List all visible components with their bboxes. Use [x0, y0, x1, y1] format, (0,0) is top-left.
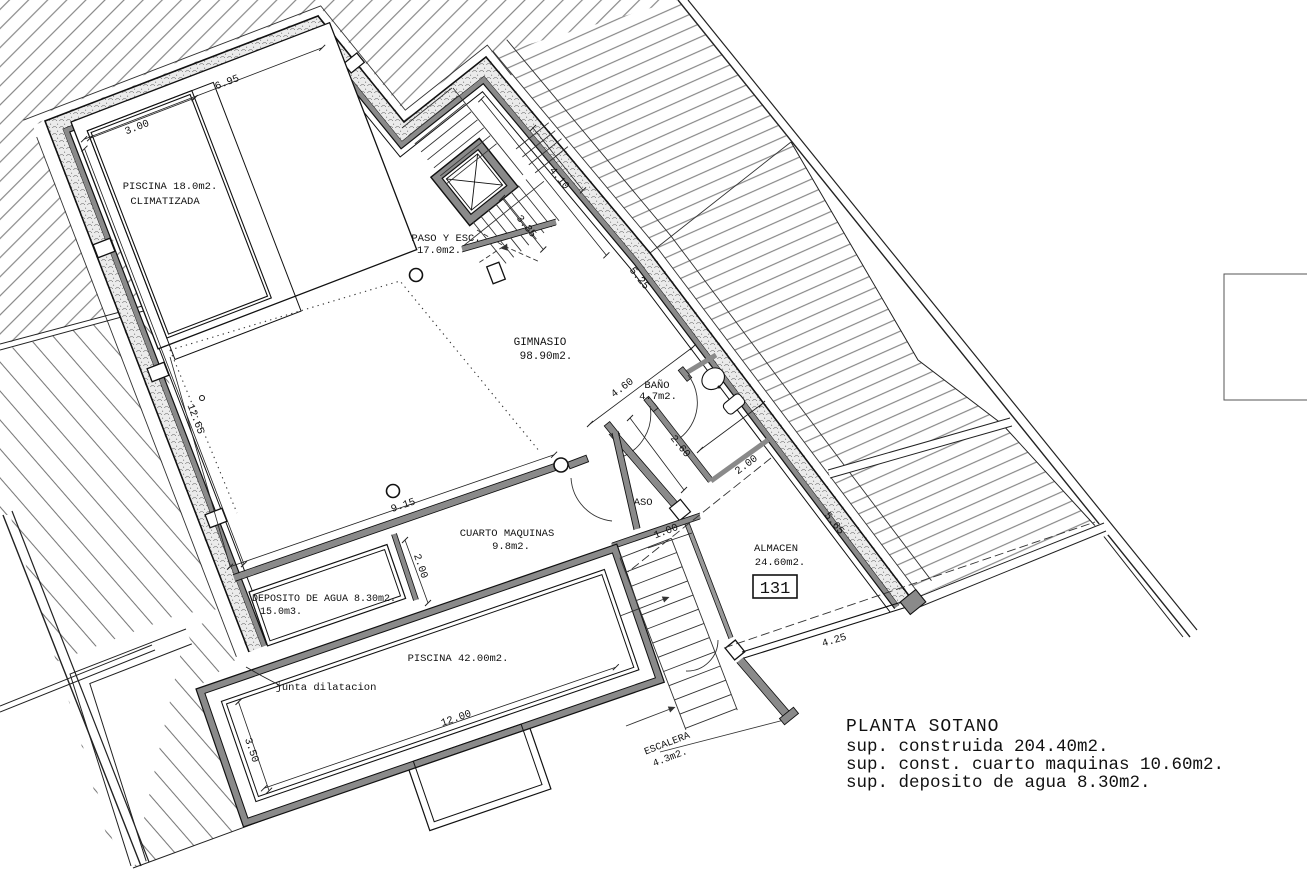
svg-text:PISCINA 42.00m2.: PISCINA 42.00m2.	[408, 653, 509, 665]
svg-text:GIMNASIO: GIMNASIO	[514, 337, 567, 349]
svg-text:17.0m2.: 17.0m2.	[417, 245, 461, 257]
svg-text:ALMACEN: ALMACEN	[754, 543, 798, 555]
svg-text:DEPOSITO DE AGUA 8.30m2.: DEPOSITO DE AGUA 8.30m2.	[252, 594, 396, 605]
svg-text:98.90m2.: 98.90m2.	[520, 351, 573, 363]
svg-text:CUARTO MAQUINAS: CUARTO MAQUINAS	[460, 528, 555, 540]
svg-text:sup. deposito de agua 8.30m2.: sup. deposito de agua 8.30m2.	[846, 773, 1151, 793]
svg-text:4.7m2.: 4.7m2.	[639, 391, 677, 403]
svg-text:15.0m3.: 15.0m3.	[260, 607, 302, 618]
svg-text:PISCINA 18.0m2.: PISCINA 18.0m2.	[123, 181, 218, 193]
svg-text:CLIMATIZADA: CLIMATIZADA	[130, 196, 200, 208]
svg-text:PASO Y ESC.: PASO Y ESC.	[411, 233, 480, 245]
svg-text:sup. const. cuarto maquinas 10: sup. const. cuarto maquinas 10.60m2.	[846, 755, 1224, 775]
svg-text:sup. construida 204.40m2.: sup. construida 204.40m2.	[846, 737, 1109, 757]
svg-text:24.60m2.: 24.60m2.	[755, 557, 805, 569]
svg-text:PLANTA SOTANO: PLANTA SOTANO	[846, 717, 999, 737]
svg-text:131: 131	[760, 580, 791, 599]
svg-text:9.8m2.: 9.8m2.	[492, 541, 530, 553]
svg-text:junta dilatacion: junta dilatacion	[276, 682, 377, 694]
